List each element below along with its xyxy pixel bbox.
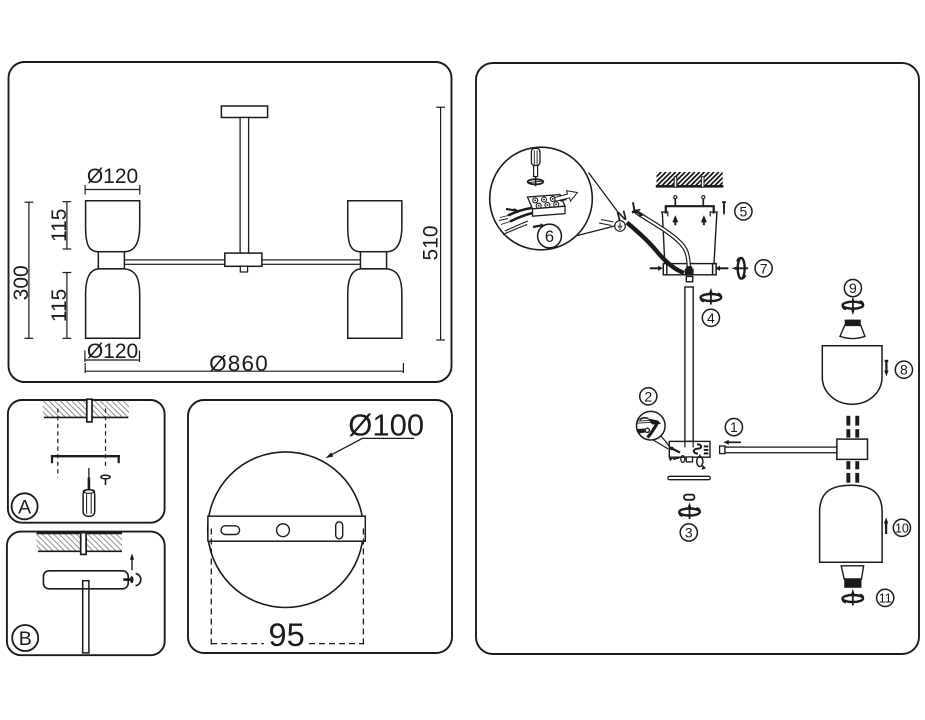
svg-text:2: 2 (644, 388, 652, 404)
svg-text:9: 9 (849, 280, 857, 296)
svg-text:95: 95 (269, 617, 305, 653)
svg-text:1: 1 (730, 419, 738, 435)
svg-text:Ø120: Ø120 (87, 165, 138, 188)
svg-text:6: 6 (545, 228, 554, 246)
svg-text:Ø100: Ø100 (348, 408, 424, 443)
svg-text:B: B (19, 628, 32, 650)
svg-text:510: 510 (420, 225, 443, 260)
svg-text:8: 8 (900, 362, 908, 378)
svg-text:Ø860: Ø860 (209, 351, 269, 376)
svg-text:4: 4 (707, 310, 715, 326)
svg-text:3: 3 (685, 525, 693, 541)
svg-text:5: 5 (740, 203, 748, 219)
svg-text:7: 7 (760, 260, 768, 276)
svg-text:115: 115 (48, 209, 71, 242)
svg-text:115: 115 (48, 289, 71, 322)
svg-text:10: 10 (895, 521, 909, 535)
svg-text:A: A (18, 496, 31, 518)
svg-text:300: 300 (10, 265, 33, 300)
svg-text:11: 11 (879, 591, 892, 605)
